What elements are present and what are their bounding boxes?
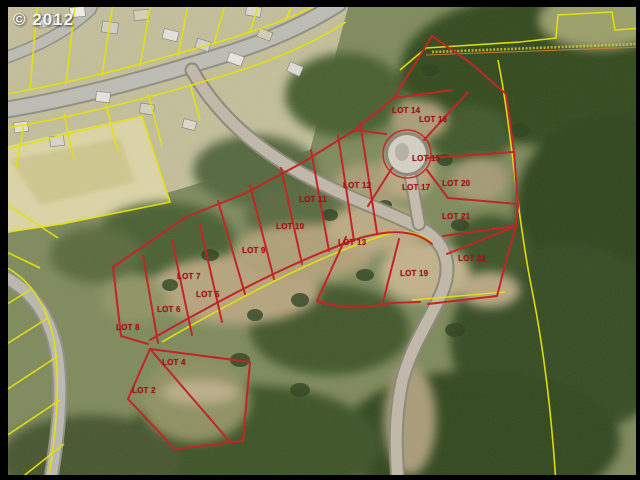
photo-grain <box>0 0 640 480</box>
aerial-photo: LOT 8LOT 6LOT 5LOT 7LOT 9LOT 10LOT 11LOT… <box>0 0 640 480</box>
copyright-watermark: © 2012 <box>13 10 74 30</box>
aerial-photo-canvas <box>0 0 640 480</box>
